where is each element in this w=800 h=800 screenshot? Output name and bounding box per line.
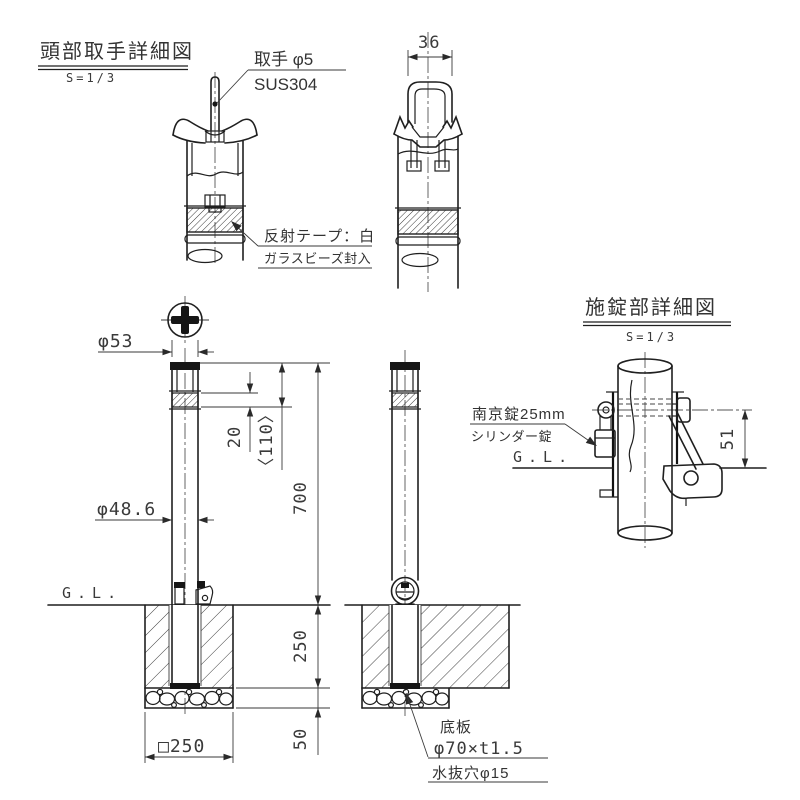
tape-note: 反射テープ：白 ガラスビーズ封入 xyxy=(228,218,375,268)
pipe-break xyxy=(188,250,222,263)
post-cap xyxy=(170,362,200,370)
dim-footing-width-text: □250 xyxy=(158,736,205,757)
handle-note-top: 取手 φ5 xyxy=(254,50,313,69)
tape-note-bottom: ガラスビーズ封入 xyxy=(264,251,371,266)
gravel-layer xyxy=(362,688,449,708)
dim-cap-dia-text: φ53 xyxy=(98,331,134,352)
break-line xyxy=(629,380,634,472)
reflective-tape-band xyxy=(392,393,418,407)
reflective-tape-band xyxy=(398,210,458,234)
sleeve-flange xyxy=(600,490,618,497)
dim-pipe-dia-text: φ48.6 xyxy=(97,499,156,520)
dim-36: 36 xyxy=(408,33,452,76)
dim-tape-width-text: 20 xyxy=(225,426,245,448)
padlock-note: 南京錠25mm シリンダー錠 xyxy=(470,406,599,449)
foundation-left xyxy=(145,605,233,708)
elevation-left-post: φ53 G.L. xyxy=(48,296,330,763)
dim-51: 51 xyxy=(718,410,748,468)
lock-note-bottom: シリンダー錠 xyxy=(471,429,552,444)
reflective-tape-band xyxy=(187,208,243,232)
head-detail-section: 頭部取手詳細図 S=1/3 xyxy=(38,32,462,292)
ground-label-left: G.L. xyxy=(62,584,122,602)
dim-stack-right: 20 〈110〉 700 250 50 xyxy=(200,363,330,755)
technical-drawing: 頭部取手詳細図 S=1/3 xyxy=(0,0,800,800)
lock-detail-title: 施錠部詳細図 xyxy=(585,296,717,319)
handle-note: 取手 φ5 SUS304 xyxy=(217,50,346,103)
head-detail-title: 頭部取手詳細図 xyxy=(40,40,194,63)
lock-detail-view: 51 南京錠25mm シリンダー錠 G.L. xyxy=(470,352,766,548)
dim-gravel-text: 50 xyxy=(291,728,311,750)
base-note-1: 底板 xyxy=(440,718,472,736)
lock-detail-scale: S=1/3 xyxy=(626,330,677,344)
dim-embed-text: 250 xyxy=(291,629,311,663)
base-note-3: 水抜穴φ15 xyxy=(432,765,509,782)
tape-note-top: 反射テープ：白 xyxy=(264,228,375,245)
leader-dot xyxy=(212,101,217,106)
reflective-tape-band xyxy=(172,393,198,407)
handle-note-bottom: SUS304 xyxy=(254,75,317,94)
base-plate xyxy=(390,683,420,689)
head-side-view xyxy=(173,72,257,266)
dim-36-text: 36 xyxy=(418,33,440,53)
head-front-view: 36 xyxy=(394,32,462,292)
head-plan-view xyxy=(161,296,209,344)
gravel-layer xyxy=(145,688,233,708)
base-plate-note: 底板 φ70×t1.5 水抜穴φ15 xyxy=(402,692,548,782)
base-plate xyxy=(170,683,200,689)
dim-footing-width: □250 xyxy=(145,712,233,763)
pipe-break xyxy=(402,254,438,267)
drawing-sheet: 頭部取手詳細図 S=1/3 xyxy=(0,0,800,800)
latch-hardware xyxy=(174,581,213,604)
dim-height-text: 700 xyxy=(291,481,311,515)
ground-label-detail: G.L. xyxy=(513,448,573,466)
dim-cap-dia: φ53 xyxy=(98,331,214,357)
lock-note-top: 南京錠25mm xyxy=(472,406,566,423)
dim-pipe-dia: φ48.6 xyxy=(95,499,214,523)
u-handle-inner xyxy=(415,89,445,124)
base-note-2: φ70×t1.5 xyxy=(434,739,524,759)
dim-tape-offset-text: 〈110〉 xyxy=(257,405,277,475)
dim-51-text: 51 xyxy=(718,428,738,450)
lock-detail-section: 施錠部詳細図 S=1/3 xyxy=(470,296,766,548)
head-detail-scale: S=1/3 xyxy=(66,71,117,85)
foundation-right xyxy=(362,605,509,708)
post-cap xyxy=(390,362,420,370)
